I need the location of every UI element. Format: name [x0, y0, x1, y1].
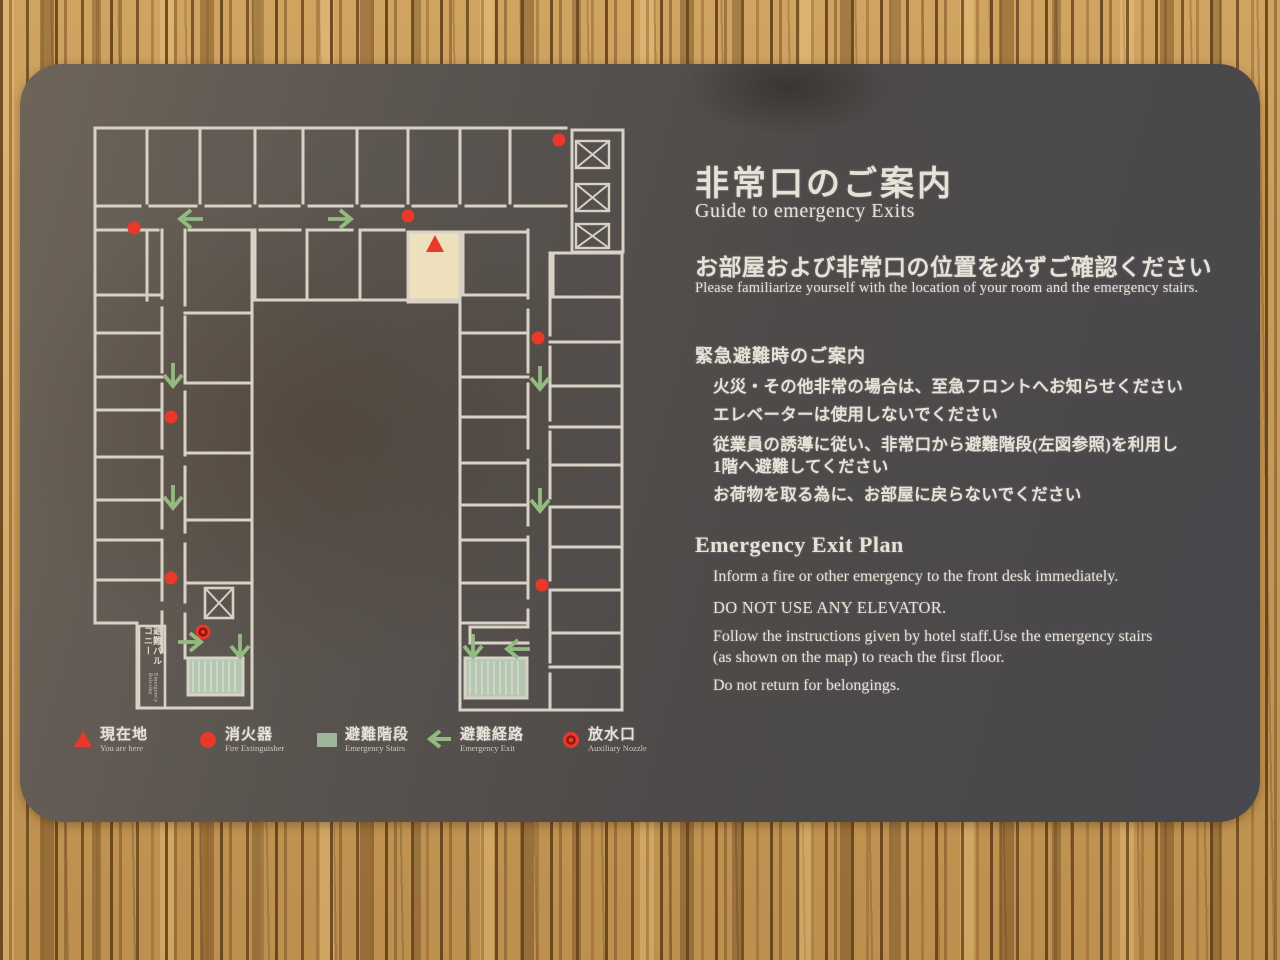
exit-route-arrow-icon — [427, 729, 453, 749]
legend-jp: 現在地 — [100, 728, 148, 744]
map-legend: 現在地 You are here 消火器 Fire Extinguisher 避… — [20, 728, 660, 778]
fire-extinguisher-marker — [165, 411, 178, 424]
legend-item-fire-extinguisher: 消火器 Fire Extinguisher — [198, 728, 284, 753]
room-box — [553, 253, 622, 297]
plan-item-en: DO NOT USE ANY ELEVATOR. — [713, 597, 1258, 618]
fire-extinguisher-marker — [553, 134, 566, 147]
legend-item-emergency-exit-route: 避難経路 Emergency Exit — [427, 728, 524, 753]
floor-plan: 避難バルコニー Emergency Balcony — [85, 120, 645, 720]
legend-en: Auxiliary Nozzle — [588, 744, 647, 753]
exit-route-arrow-marker — [180, 210, 203, 228]
legend-jp: 避難階段 — [345, 728, 409, 744]
legend-jp: 消火器 — [225, 728, 284, 744]
room-box — [463, 232, 528, 295]
legend-en: You are here — [100, 744, 148, 753]
exit-route-arrow-marker — [164, 485, 182, 508]
fire-extinguisher-marker — [165, 572, 178, 585]
notice-jp: お部屋および非常口の位置を必ずご確認ください — [695, 248, 1212, 282]
exit-route-arrow-marker — [531, 488, 549, 511]
service-elevator — [205, 588, 233, 618]
emergency-stairs-icon — [316, 729, 338, 749]
evacuation-item-jp: エレベーターは使用しないでください — [713, 404, 1258, 426]
exit-route-arrow-marker — [328, 210, 351, 228]
exit-route-arrow-marker — [531, 366, 549, 389]
emergency-stairs-right — [465, 658, 527, 698]
balcony-label-jp: 避難バルコニー — [143, 626, 161, 672]
fire-extinguisher-marker — [402, 210, 415, 223]
evacuation-item-jp: 従業員の誘導に従い、非常口から避難階段(左図参照)を利用し 1階へ避難してくださ… — [713, 434, 1258, 479]
legend-en: Emergency Stairs — [345, 744, 409, 753]
emergency-exit-sign-panel: 避難バルコニー Emergency Balcony 非常口のご案内 Guide … — [20, 64, 1260, 822]
legend-item-you-are-here: 現在地 You are here — [73, 728, 148, 753]
legend-jp: 放水口 — [588, 728, 647, 744]
sign-title-en: Guide to emergency Exits — [695, 200, 915, 223]
plan-heading-en: Emergency Exit Plan — [695, 532, 904, 558]
legend-item-emergency-stairs: 避難階段 Emergency Stairs — [316, 728, 409, 753]
fire-extinguisher-marker — [128, 222, 141, 235]
sign-title-jp: 非常口のご案内 — [695, 156, 954, 205]
floor-plan-svg — [85, 120, 645, 720]
plan-item-en: Follow the instructions given by hotel s… — [713, 627, 1258, 669]
markers-layer — [128, 134, 566, 659]
legend-en: Emergency Exit — [460, 744, 524, 753]
exit-route-arrow-marker — [231, 634, 249, 657]
plan-item-en: Inform a fire or other emergency to the … — [713, 567, 1258, 588]
emergency-balcony-label: 避難バルコニー Emergency Balcony — [139, 626, 165, 708]
legend-item-auxiliary-nozzle: 放水口 Auxiliary Nozzle — [561, 728, 647, 753]
exit-route-arrow-marker — [164, 363, 182, 386]
balcony-label-en: Emergency Balcony — [147, 673, 158, 708]
fire-extinguisher-marker — [532, 332, 545, 345]
legend-en: Fire Extinguisher — [225, 744, 284, 753]
exit-route-arrow-marker — [464, 634, 482, 657]
evacuation-heading-jp: 緊急避難時のご案内 — [695, 342, 866, 368]
fire-extinguisher-icon — [198, 729, 218, 749]
emergency-stairs-left — [188, 658, 243, 695]
legend-jp: 避難経路 — [460, 728, 524, 744]
evacuation-item-jp: 火災・その他非常の場合は、至急フロントへお知らせください — [713, 376, 1258, 398]
you-are-here-icon — [73, 729, 93, 749]
notice-en: Please familiarize yourself with the loc… — [695, 280, 1198, 297]
elevator-bank — [572, 130, 623, 252]
plan-item-en: Do not return for belongings. — [713, 676, 1258, 697]
fire-extinguisher-marker — [536, 579, 549, 592]
evacuation-item-jp: お荷物を取る為に、お部屋に戻らないでください — [713, 484, 1258, 506]
auxiliary-nozzle-icon — [561, 729, 581, 749]
